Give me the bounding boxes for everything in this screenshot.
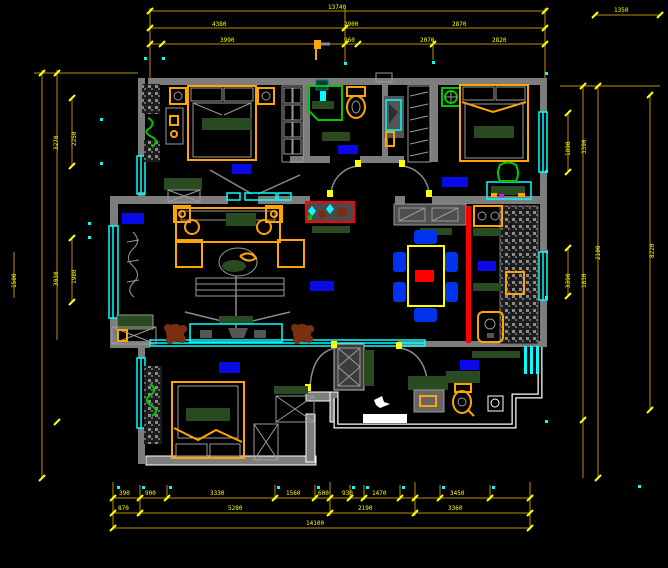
dimension-chain-top: 13740 4380 2900 2870 3990 960 2070 2820 … [144,4,663,78]
floorplan-canvas[interactable]: 13740 4380 2900 2870 3990 960 2070 2820 … [0,0,668,568]
dim-label: 1980 [71,269,78,284]
ceiling-fan-icon [442,88,460,106]
window-balcony [150,340,425,346]
dim-label: 1350 [614,7,629,14]
dim-label: 3330 [210,490,225,497]
room-living [112,206,314,344]
shelf [274,386,308,394]
dim-label: 8220 [649,243,656,258]
dim-label: 2820 [492,37,507,44]
armchair-right [278,240,304,267]
shelf [472,351,520,358]
sideboard [394,204,466,225]
room-bedroom-topleft [142,84,303,202]
dimension-chain-bottom: 390 900 3330 1560 600 930 1470 3450 870 … [110,482,533,531]
dim-label: 3360 [448,505,463,512]
dim-label: 13740 [328,4,346,11]
room-dining [393,204,466,322]
dim-label: 2190 [358,505,373,512]
dim-label: 3990 [220,37,235,44]
window-bedroom-topright [539,112,547,172]
room-label-bedroom-topright [442,177,468,187]
window-bedroom-topleft [137,156,145,194]
room-bedroom-bottom [144,362,314,460]
shower [308,86,342,120]
washing-machine-icon [488,396,503,411]
cad-viewport: 13740 4380 2900 2870 3990 960 2070 2820 … [0,0,668,568]
dim-label: 600 [318,490,329,497]
door-entry [305,341,337,391]
bath-mat [322,132,350,141]
dim-label: 3450 [450,490,465,497]
room-label-bedroom-bottom [219,362,240,373]
dim-label: 930 [342,490,353,497]
bench [164,178,202,190]
dim-label: 2070 [420,37,435,44]
dim-label: 3390 [565,273,572,288]
plant-pot-left [164,324,187,344]
dim-label: 3030 [53,271,60,286]
stove-icon [474,206,502,226]
window-living [109,226,118,318]
room-label-kitchen [478,261,496,271]
dim-label: 14100 [306,520,324,527]
nightstand-right [258,88,274,104]
counter [408,376,448,390]
counter [446,371,480,383]
dim-label: 2100 [595,245,602,260]
vanity [384,96,404,146]
closet-x [254,396,314,460]
dim-label: 1560 [286,490,301,497]
room-bedroom-topright [442,85,531,199]
armchair-left [176,240,202,267]
window-bathroom-2 [524,346,539,374]
dim-label: 390 [119,490,130,497]
dining-table [408,246,444,306]
room-bathroom-2 [396,342,520,416]
dim-label: 2870 [452,21,467,28]
dim-label: 900 [145,490,156,497]
toilet-icon [347,87,365,118]
room-bathroom [308,73,430,162]
hall-rug [312,226,350,233]
dim-label: 5280 [228,505,243,512]
counter-strip [473,228,501,236]
dim-label: 1890 [565,141,572,156]
dim-label: 870 [118,505,129,512]
dim-label: 1470 [372,490,387,497]
cabinet [414,390,444,412]
room-kitchen [466,206,538,344]
shoe-cabinet [334,344,374,390]
door-bedroom-topright [399,160,432,197]
tv-console-light [219,316,253,324]
sofa [174,206,282,242]
wardrobe [282,86,303,162]
rug [196,278,284,296]
door-swing [210,170,300,200]
nightstand-left [170,88,186,104]
dim-label: 960 [344,37,355,44]
dim-label: 4380 [212,21,227,28]
counter-strip [473,283,501,291]
section-marker [314,40,330,60]
kitchen-divider [466,206,471,343]
dim-label: 2900 [344,21,359,28]
dim-label: 2250 [71,131,78,146]
room-label-bathroom-2 [460,360,479,370]
linen-closet [408,86,430,162]
dim-label: 3390 [581,139,588,154]
room-label-hall [310,281,334,291]
window-kitchen [539,252,547,300]
dim-label: 1830 [581,273,588,288]
desk-chair [498,163,518,182]
wardrobe-hatch [144,140,160,162]
window-bedroom-bottom [137,358,145,428]
bed [172,382,244,458]
sink-icon [478,312,503,342]
wardrobe-hatch [142,84,160,114]
console-table [306,202,354,222]
plant-pot-right [291,324,314,344]
dim-label: 1500 [11,273,18,288]
room-label-bathroom [338,145,358,154]
wardrobe-hatch [144,366,162,444]
dresser [166,108,183,144]
water-heater-icon [453,384,474,416]
bed [188,86,256,160]
dimension-chain-right: 1890 3390 2100 3390 1830 8220 [545,72,660,488]
coffee-table [219,248,257,276]
dimension-chain-left: 3270 2250 3030 1980 1500 [11,70,138,481]
bed [460,85,528,161]
north-marker [363,396,407,423]
door-bathroom [327,160,361,197]
room-label-living [122,213,144,224]
dim-label: 3270 [53,135,60,150]
room-label-bedroom-topleft [232,164,251,174]
